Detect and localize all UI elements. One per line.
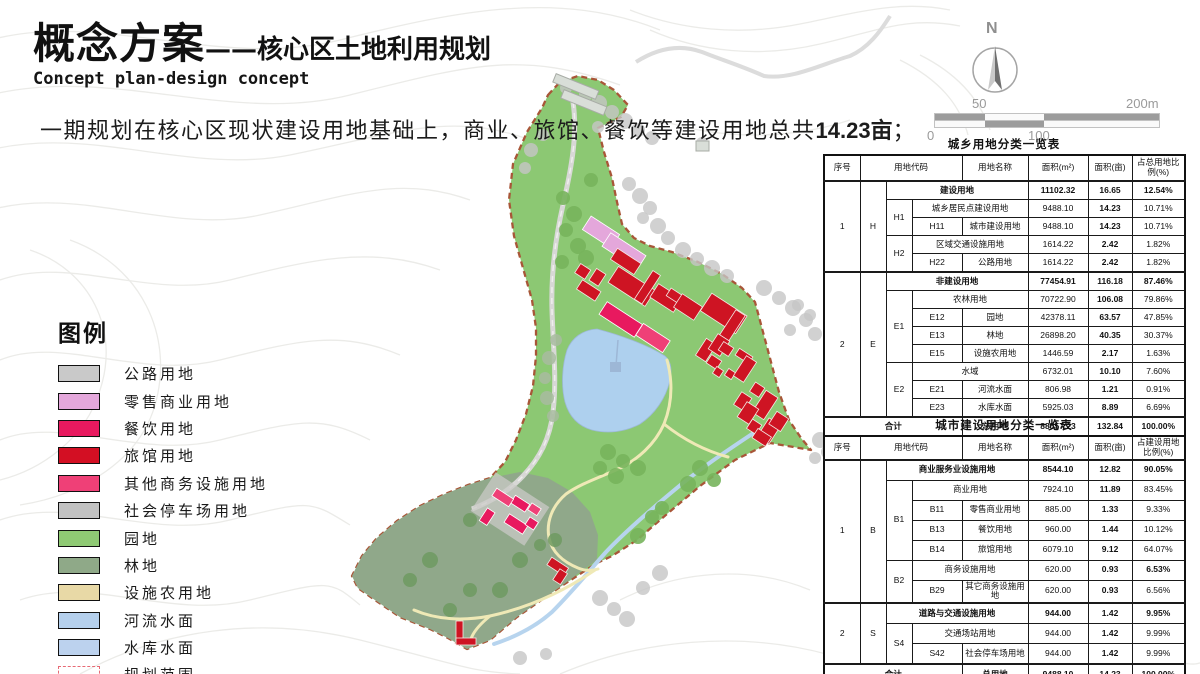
table-cell: E1: [886, 291, 912, 363]
table-cell: 0.93: [1088, 560, 1132, 580]
table-cell: 道路与交通设施用地: [886, 603, 1028, 624]
table-cell: 620.00: [1028, 560, 1088, 580]
table-cell: 河流水面: [962, 381, 1028, 399]
table-cell: 14.23: [1088, 218, 1132, 236]
table-cell: 885.00: [1028, 500, 1088, 520]
legend-label: 林地: [124, 555, 160, 576]
table-cell: 区域交通设施用地: [912, 236, 1028, 254]
legend-item: 旅馆用地: [58, 442, 268, 469]
table-cell: 农林用地: [912, 291, 1028, 309]
table-cell: 8544.10: [1028, 460, 1088, 481]
table-cell: 14.23: [1088, 664, 1132, 674]
table-cell: 47.85%: [1132, 309, 1185, 327]
table-cell: 5925.03: [1028, 399, 1088, 418]
table-cell: H: [860, 181, 886, 272]
legend-item: 设施农用地: [58, 579, 268, 606]
table-cell: 11102.32: [1028, 181, 1088, 200]
table-cell: 序号: [824, 155, 860, 181]
table-cell: 70722.90: [1028, 291, 1088, 309]
table-cell: 83.45%: [1132, 480, 1185, 500]
legend-item: 水库水面: [58, 634, 268, 661]
legend-label: 餐饮用地: [124, 418, 196, 439]
table-cell: 944.00: [1028, 603, 1088, 624]
table-cell: 1.21: [1088, 381, 1132, 399]
north-label: N: [986, 20, 998, 38]
table-cell: 79.86%: [1132, 291, 1185, 309]
table-cell: B: [860, 460, 886, 604]
table-cell: 用地名称: [962, 155, 1028, 181]
table-cell: 806.98: [1028, 381, 1088, 399]
table-cell: 9.99%: [1132, 644, 1185, 665]
table-cell: 6.69%: [1132, 399, 1185, 418]
table-cell: 2: [824, 603, 860, 664]
table-cell: 水域: [912, 363, 1028, 381]
table-cell: 城乡居民点建设用地: [912, 200, 1028, 218]
table-cell: 944.00: [1028, 644, 1088, 665]
table-cell: H1: [886, 200, 912, 236]
page-title: 概念方案: [33, 19, 205, 68]
table-cell: 6.53%: [1132, 560, 1185, 580]
table-row: 2E非建设用地77454.91116.1887.46%: [824, 272, 1185, 291]
table-cell: 商务设施用地: [912, 560, 1028, 580]
legend-item: 餐饮用地: [58, 415, 268, 442]
table-cell: S42: [912, 644, 962, 665]
table-cell: 1.63%: [1132, 345, 1185, 363]
legend-items: 公路用地零售商业用地餐饮用地旅馆用地其他商务设施用地社会停车场用地园地林地设施农…: [58, 360, 268, 674]
existing-road: [636, 16, 890, 77]
legend-item: 河流水面: [58, 607, 268, 634]
legend-swatch-icon: [58, 557, 100, 574]
table-cell: 面积(亩): [1088, 436, 1132, 460]
data-table: 序号用地代码用地名称面积(m²)面积(亩)占总用地比例(%)1H建设用地1110…: [823, 154, 1186, 437]
table-title: 城市建设用地分类一览表: [823, 417, 1185, 433]
table-cell: 16.65: [1088, 181, 1132, 200]
table-cell: B14: [912, 540, 962, 560]
table-row: 序号用地代码用地名称面积(m²)面积(亩)占总用地比例(%): [824, 155, 1185, 181]
table-cell: 合计: [824, 664, 962, 674]
table-cell: 87.46%: [1132, 272, 1185, 291]
table-cell: 1614.22: [1028, 254, 1088, 273]
table-cell: 用地名称: [962, 436, 1028, 460]
table-cell: 6732.01: [1028, 363, 1088, 381]
table-urban-construction-land: 城市建设用地分类一览表序号用地代码用地名称面积(m²)面积(亩)占建设用地比例(…: [823, 417, 1185, 674]
table-cell: 10.12%: [1132, 520, 1185, 540]
table-title: 城乡用地分类一览表: [823, 136, 1185, 152]
legend-label: 公路用地: [124, 363, 196, 384]
table-cell: 园地: [962, 309, 1028, 327]
table-cell: 11.89: [1088, 480, 1132, 500]
legend-swatch-icon: [58, 447, 100, 464]
legend-label: 社会停车场用地: [124, 500, 250, 521]
table-cell: S4: [886, 624, 912, 665]
table-cell: 1.82%: [1132, 236, 1185, 254]
table-cell: E21: [912, 381, 962, 399]
table-cell: 2.42: [1088, 254, 1132, 273]
table-row: 序号用地代码用地名称面积(m²)面积(亩)占建设用地比例(%): [824, 436, 1185, 460]
table-cell: 42378.11: [1028, 309, 1088, 327]
table-cell: 商业用地: [912, 480, 1028, 500]
legend-swatch-icon: [58, 584, 100, 601]
legend-label: 水库水面: [124, 637, 196, 658]
legend-swatch-icon: [58, 393, 100, 410]
table-cell: E13: [912, 327, 962, 345]
table-cell: 1.42: [1088, 624, 1132, 644]
legend-swatch-icon: [58, 502, 100, 519]
table-cell: 1.82%: [1132, 254, 1185, 273]
table-cell: 其它商务设施用地: [962, 580, 1028, 603]
table-cell: 社会停车场用地: [962, 644, 1028, 665]
legend-label: 规划范围: [124, 664, 196, 674]
table-cell: 用地代码: [860, 155, 962, 181]
table-cell: 城市建设用地: [962, 218, 1028, 236]
table-cell: 960.00: [1028, 520, 1088, 540]
table-cell: 林地: [962, 327, 1028, 345]
table-cell: 1.44: [1088, 520, 1132, 540]
table-cell: 0.93: [1088, 580, 1132, 603]
table-cell: 7.60%: [1132, 363, 1185, 381]
table-cell: 9.33%: [1132, 500, 1185, 520]
table-cell: 零售商业用地: [962, 500, 1028, 520]
page-title-en: Concept plan-design concept: [33, 69, 491, 89]
table-cell: 6.56%: [1132, 580, 1185, 603]
table-cell: 面积(亩): [1088, 155, 1132, 181]
legend-label: 设施农用地: [124, 582, 214, 603]
table-cell: 10.71%: [1132, 218, 1185, 236]
table-cell: 餐饮用地: [962, 520, 1028, 540]
table-cell: 1.42: [1088, 603, 1132, 624]
table-cell: 商业服务业设施用地: [886, 460, 1028, 481]
table-cell: 9.12: [1088, 540, 1132, 560]
table-cell: 10.71%: [1132, 200, 1185, 218]
legend-label: 其他商务设施用地: [124, 473, 268, 494]
legend-item: 规划范围: [58, 661, 268, 674]
scale-label-50: 50: [972, 96, 986, 111]
table-cell: 面积(m²): [1028, 436, 1088, 460]
table-cell: 63.57: [1088, 309, 1132, 327]
north-compass-icon: [973, 46, 1017, 92]
table-cell: B29: [912, 580, 962, 603]
page-subtitle: ——核心区土地利用规划: [205, 35, 491, 65]
legend-swatch-icon: [58, 612, 100, 629]
table-row: 1B商业服务业设施用地8544.1012.8290.05%: [824, 460, 1185, 481]
table-cell: B11: [912, 500, 962, 520]
table-cell: 9488.10: [1028, 200, 1088, 218]
table-cell: 建设用地: [886, 181, 1028, 200]
title-block: 概念方案——核心区土地利用规划 Concept plan-design conc…: [33, 22, 491, 89]
scale-bar-segments: [934, 113, 1160, 128]
legend-swatch-icon: [58, 639, 100, 656]
table-cell: 面积(m²): [1028, 155, 1088, 181]
table-row: 1H建设用地11102.3216.6512.54%: [824, 181, 1185, 200]
legend-item: 园地: [58, 524, 268, 551]
legend-item: 零售商业用地: [58, 387, 268, 414]
table-cell: 占建设用地比例(%): [1132, 436, 1185, 460]
scale-label-200m: 200m: [1126, 96, 1159, 111]
table-row: 2S道路与交通设施用地944.001.429.95%: [824, 603, 1185, 624]
table-cell: 2: [824, 272, 860, 417]
table-cell: 水库水面: [962, 399, 1028, 418]
table-cell: 交通场站用地: [912, 624, 1028, 644]
table-cell: 90.05%: [1132, 460, 1185, 481]
table-cell: 9.99%: [1132, 624, 1185, 644]
table-cell: 8.89: [1088, 399, 1132, 418]
legend-swatch-icon: [58, 420, 100, 437]
table-cell: S: [860, 603, 886, 664]
intro-text-before: 一期规划在核心区现状建设用地基础上，商业、旅馆、餐饮等建设用地总共: [40, 119, 816, 144]
table-cell: 9488.10: [1028, 664, 1088, 674]
legend-label: 旅馆用地: [124, 445, 196, 466]
table-cell: 序号: [824, 436, 860, 460]
table-cell: B2: [886, 560, 912, 603]
table-cell: E23: [912, 399, 962, 418]
table-cell: 0.91%: [1132, 381, 1185, 399]
table-cell: 10.10: [1088, 363, 1132, 381]
table-cell: 1614.22: [1028, 236, 1088, 254]
table-cell: H2: [886, 236, 912, 273]
legend-item: 林地: [58, 552, 268, 579]
table-cell: 非建设用地: [886, 272, 1028, 291]
table-cell: 106.08: [1088, 291, 1132, 309]
legend-item: 公路用地: [58, 360, 268, 387]
table-cell: H22: [912, 254, 962, 273]
legend-label: 河流水面: [124, 610, 196, 631]
table-cell: 6079.10: [1028, 540, 1088, 560]
table-cell: E15: [912, 345, 962, 363]
table-cell: B13: [912, 520, 962, 540]
intro-text: 一期规划在核心区现状建设用地基础上，商业、旅馆、餐饮等建设用地总共14.23亩；: [40, 113, 916, 145]
legend-item: 其他商务设施用地: [58, 470, 268, 497]
table-cell: 30.37%: [1132, 327, 1185, 345]
table-row: 合计总用地9488.1014.23100.00%: [824, 664, 1185, 674]
table-cell: 14.23: [1088, 200, 1132, 218]
table-cell: 1446.59: [1028, 345, 1088, 363]
table-cell: 旅馆用地: [962, 540, 1028, 560]
table-cell: 2.42: [1088, 236, 1132, 254]
table-cell: 9488.10: [1028, 218, 1088, 236]
table-cell: 1: [824, 460, 860, 604]
legend-swatch-icon: [58, 530, 100, 547]
table-cell: 40.35: [1088, 327, 1132, 345]
table-cell: 1: [824, 181, 860, 272]
table-cell: 620.00: [1028, 580, 1088, 603]
table-cell: 100.00%: [1132, 664, 1185, 674]
table-cell: 77454.91: [1028, 272, 1088, 291]
table-cell: H11: [912, 218, 962, 236]
table-urban-rural-land: 城乡用地分类一览表序号用地代码用地名称面积(m²)面积(亩)占总用地比例(%)1…: [823, 136, 1185, 437]
table-cell: B1: [886, 480, 912, 560]
legend-title: 图例: [58, 314, 268, 348]
table-cell: E: [860, 272, 886, 417]
legend-swatch-icon: [58, 666, 100, 674]
legend-label: 零售商业用地: [124, 391, 232, 412]
legend-swatch-icon: [58, 475, 100, 492]
table-cell: 9.95%: [1132, 603, 1185, 624]
data-table: 序号用地代码用地名称面积(m²)面积(亩)占建设用地比例(%)1B商业服务业设施…: [823, 435, 1186, 674]
table-cell: 12.54%: [1132, 181, 1185, 200]
table-cell: 公路用地: [962, 254, 1028, 273]
table-cell: E12: [912, 309, 962, 327]
table-cell: 7924.10: [1028, 480, 1088, 500]
table-cell: E2: [886, 363, 912, 418]
table-cell: 2.17: [1088, 345, 1132, 363]
table-cell: 占总用地比例(%): [1132, 155, 1185, 181]
map-legend: 图例 公路用地零售商业用地餐饮用地旅馆用地其他商务设施用地社会停车场用地园地林地…: [58, 314, 268, 674]
legend-swatch-icon: [58, 365, 100, 382]
table-cell: 设施农用地: [962, 345, 1028, 363]
table-cell: 26898.20: [1028, 327, 1088, 345]
table-cell: 116.18: [1088, 272, 1132, 291]
table-cell: 64.07%: [1132, 540, 1185, 560]
table-cell: 1.33: [1088, 500, 1132, 520]
table-cell: 1.42: [1088, 644, 1132, 665]
legend-item: 社会停车场用地: [58, 497, 268, 524]
table-cell: 12.82: [1088, 460, 1132, 481]
table-cell: 944.00: [1028, 624, 1088, 644]
table-cell: 用地代码: [860, 436, 962, 460]
table-cell: 总用地: [962, 664, 1028, 674]
legend-label: 园地: [124, 528, 160, 549]
